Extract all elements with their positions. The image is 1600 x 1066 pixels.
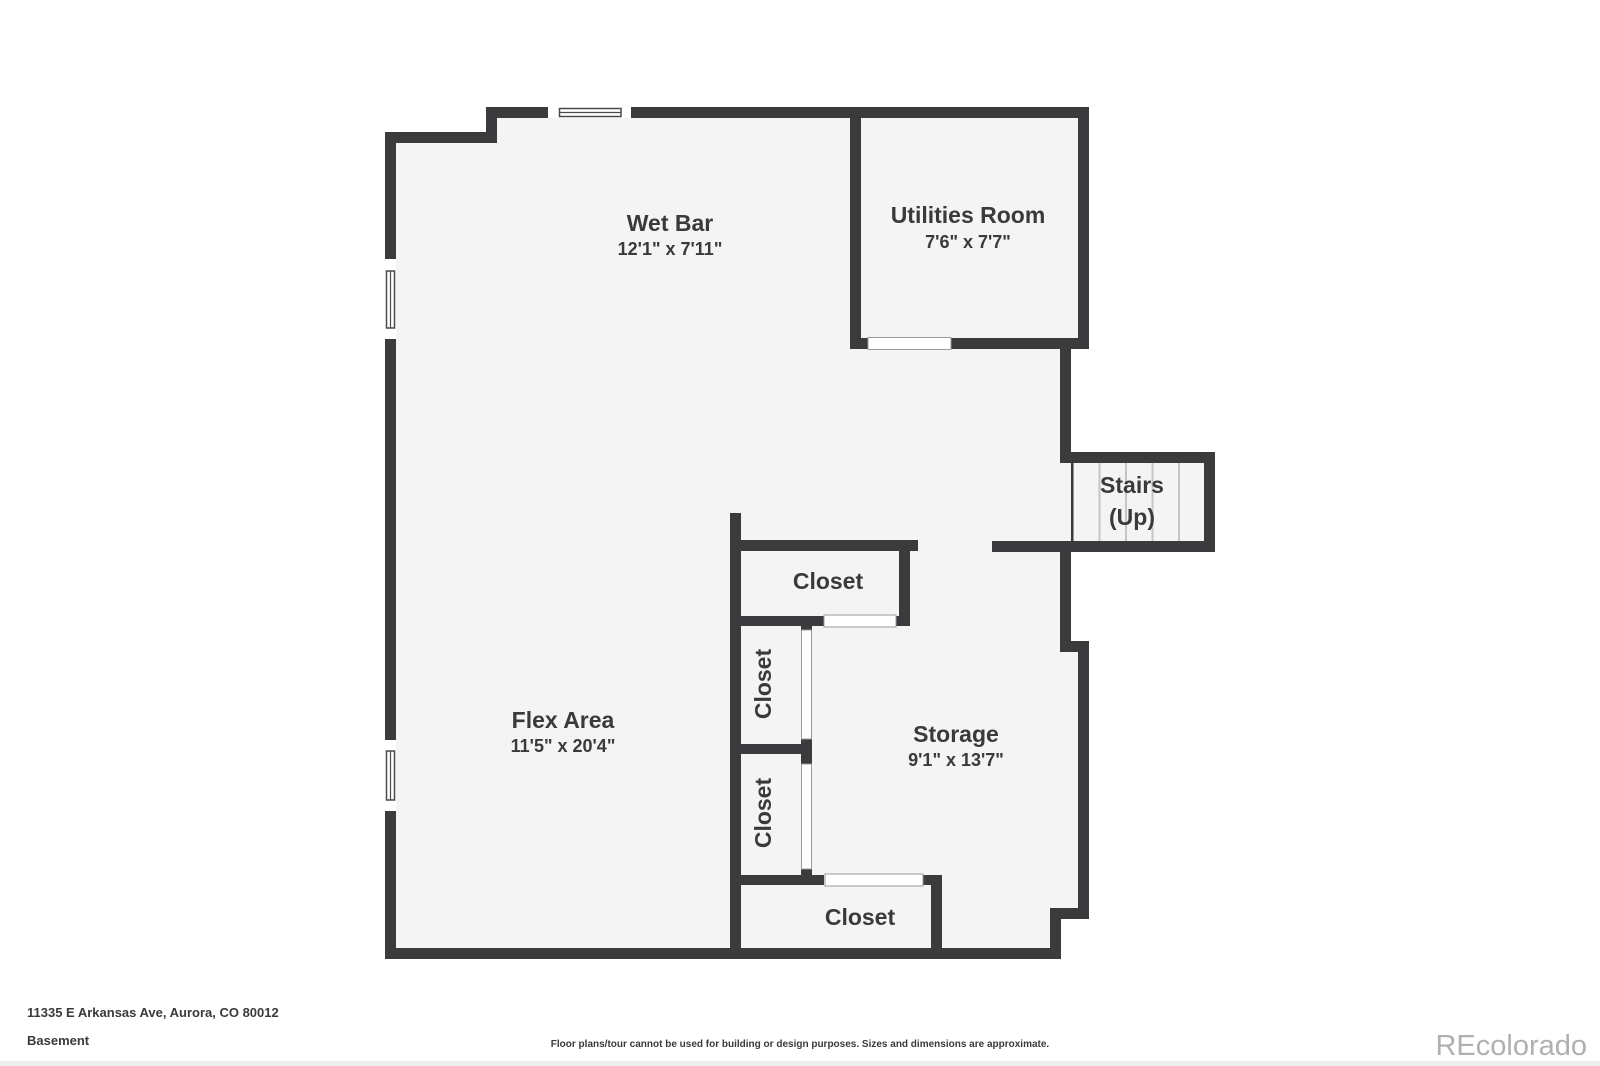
svg-text:11335 E Arkansas Ave, Aurora,: 11335 E Arkansas Ave, Aurora, CO 80012 <box>27 1005 279 1020</box>
svg-text:Wet Bar: Wet Bar <box>627 210 714 236</box>
svg-text:Storage: Storage <box>913 721 999 747</box>
svg-text:(Up): (Up) <box>1109 504 1155 530</box>
svg-text:Stairs: Stairs <box>1100 472 1164 498</box>
svg-text:REcolorado: REcolorado <box>1435 1030 1587 1062</box>
svg-text:Closet: Closet <box>750 778 776 849</box>
svg-text:Basement: Basement <box>27 1033 90 1048</box>
svg-text:Closet: Closet <box>793 568 864 594</box>
svg-text:Floor plans/tour cannot be use: Floor plans/tour cannot be used for buil… <box>551 1039 1050 1050</box>
svg-text:Closet: Closet <box>750 649 776 720</box>
svg-text:7'6" x 7'7": 7'6" x 7'7" <box>925 232 1011 252</box>
svg-text:11'5" x 20'4": 11'5" x 20'4" <box>511 736 616 756</box>
svg-text:Closet: Closet <box>825 904 896 930</box>
svg-text:12'1" x 7'11": 12'1" x 7'11" <box>618 239 723 259</box>
svg-text:Utilities Room: Utilities Room <box>891 202 1046 228</box>
svg-text:9'1" x 13'7": 9'1" x 13'7" <box>908 750 1004 770</box>
svg-text:Flex Area: Flex Area <box>512 707 615 733</box>
